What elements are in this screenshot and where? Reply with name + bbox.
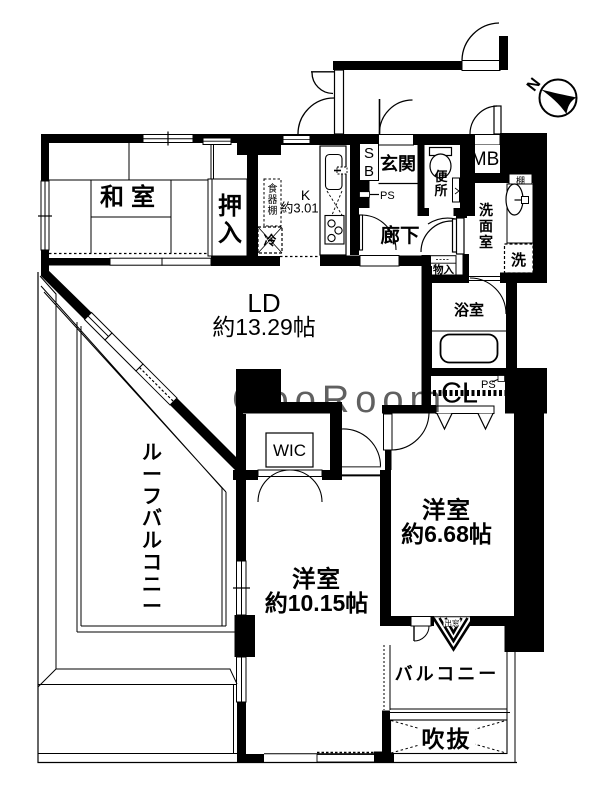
svg-text:ル: ル — [142, 442, 162, 464]
svg-text:GooRoom: GooRoom — [232, 379, 447, 421]
svg-text:洗: 洗 — [479, 202, 493, 218]
svg-text:室: 室 — [479, 234, 493, 250]
svg-text:冷: 冷 — [263, 233, 276, 248]
svg-text:洋室: 洋室 — [292, 565, 341, 592]
svg-text:洗: 洗 — [511, 251, 526, 269]
svg-text:棚: 棚 — [268, 204, 278, 217]
svg-text:ニ: ニ — [142, 574, 162, 596]
svg-text:面: 面 — [479, 218, 493, 234]
svg-text:浴室: 浴室 — [454, 301, 484, 319]
svg-text:フ: フ — [142, 486, 162, 508]
svg-text:MB: MB — [471, 149, 500, 170]
svg-text:WIC: WIC — [273, 441, 306, 460]
svg-text:押: 押 — [218, 193, 242, 220]
svg-text:バルコニー: バルコニー — [395, 664, 500, 684]
svg-text:廊下: 廊下 — [380, 224, 419, 247]
svg-text:PS: PS — [380, 190, 395, 202]
svg-text:洋室: 洋室 — [422, 496, 471, 523]
svg-text:入: 入 — [218, 220, 242, 247]
svg-text:ー: ー — [142, 596, 162, 618]
svg-text:所: 所 — [434, 183, 447, 198]
svg-text:食: 食 — [268, 182, 278, 195]
svg-text:便: 便 — [434, 169, 448, 184]
svg-text:PS: PS — [481, 379, 496, 391]
svg-text:コ: コ — [142, 552, 162, 574]
svg-text:物入: 物入 — [433, 263, 454, 276]
svg-text:器: 器 — [268, 194, 278, 206]
svg-text:出窓: 出窓 — [445, 618, 460, 628]
svg-text:バ: バ — [142, 507, 162, 530]
svg-text:B: B — [364, 163, 374, 180]
svg-text:約10.15帖: 約10.15帖 — [265, 590, 369, 616]
svg-text:ル: ル — [142, 530, 162, 552]
svg-text:約6.68帖: 約6.68帖 — [401, 521, 492, 547]
svg-text:吹抜: 吹抜 — [422, 726, 472, 752]
svg-text:S: S — [364, 145, 374, 162]
svg-text:和室: 和室 — [100, 183, 162, 211]
svg-text:ー: ー — [142, 464, 162, 486]
svg-text:玄関: 玄関 — [380, 153, 416, 174]
svg-text:約13.29帖: 約13.29帖 — [212, 314, 316, 340]
